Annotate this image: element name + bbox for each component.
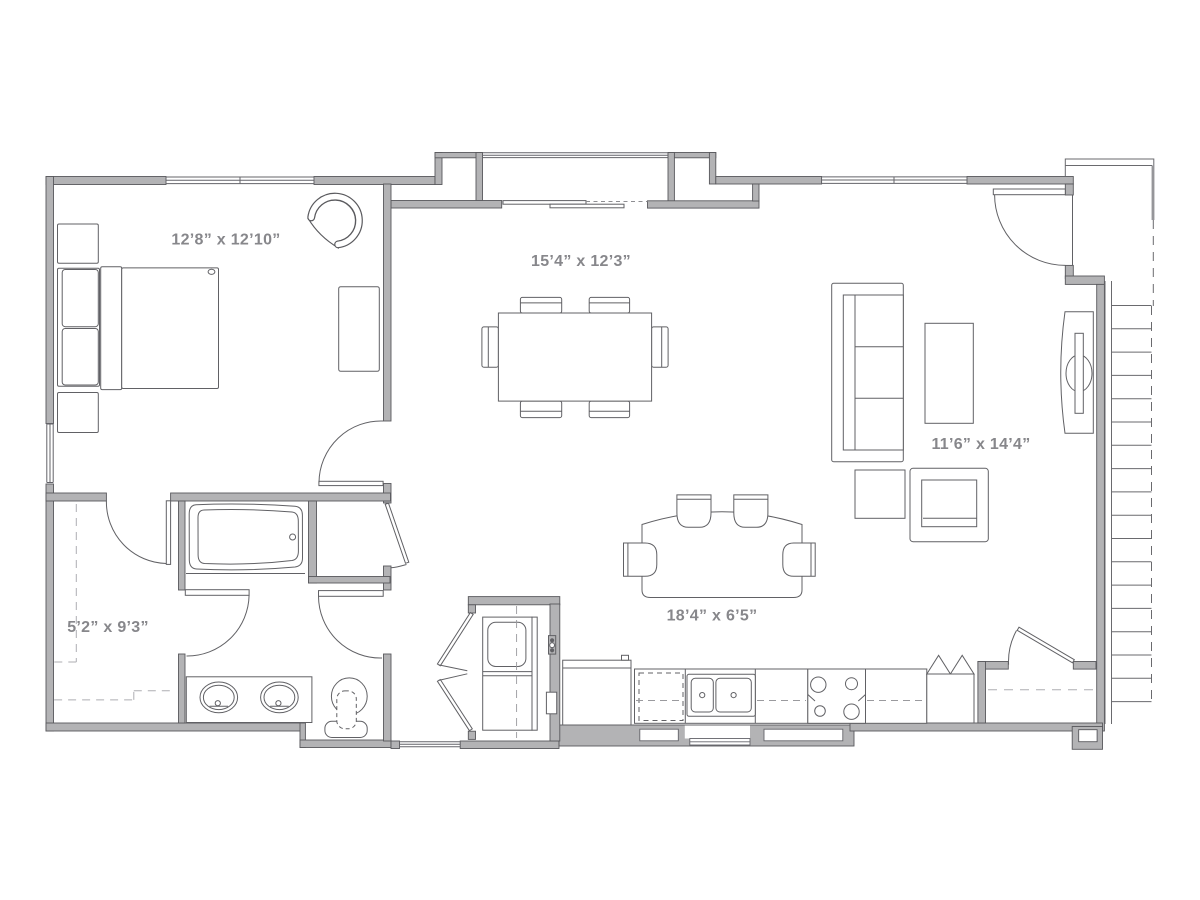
- svg-text:5’2” x 9’3”: 5’2” x 9’3”: [67, 619, 149, 636]
- svg-text:15’4” x 12’3”: 15’4” x 12’3”: [531, 253, 631, 270]
- svg-text:11’6” x 14’4”: 11’6” x 14’4”: [931, 436, 1030, 453]
- svg-text:18’4” x 6’5”: 18’4” x 6’5”: [667, 608, 758, 625]
- svg-text:12’8” x 12’10”: 12’8” x 12’10”: [171, 232, 280, 249]
